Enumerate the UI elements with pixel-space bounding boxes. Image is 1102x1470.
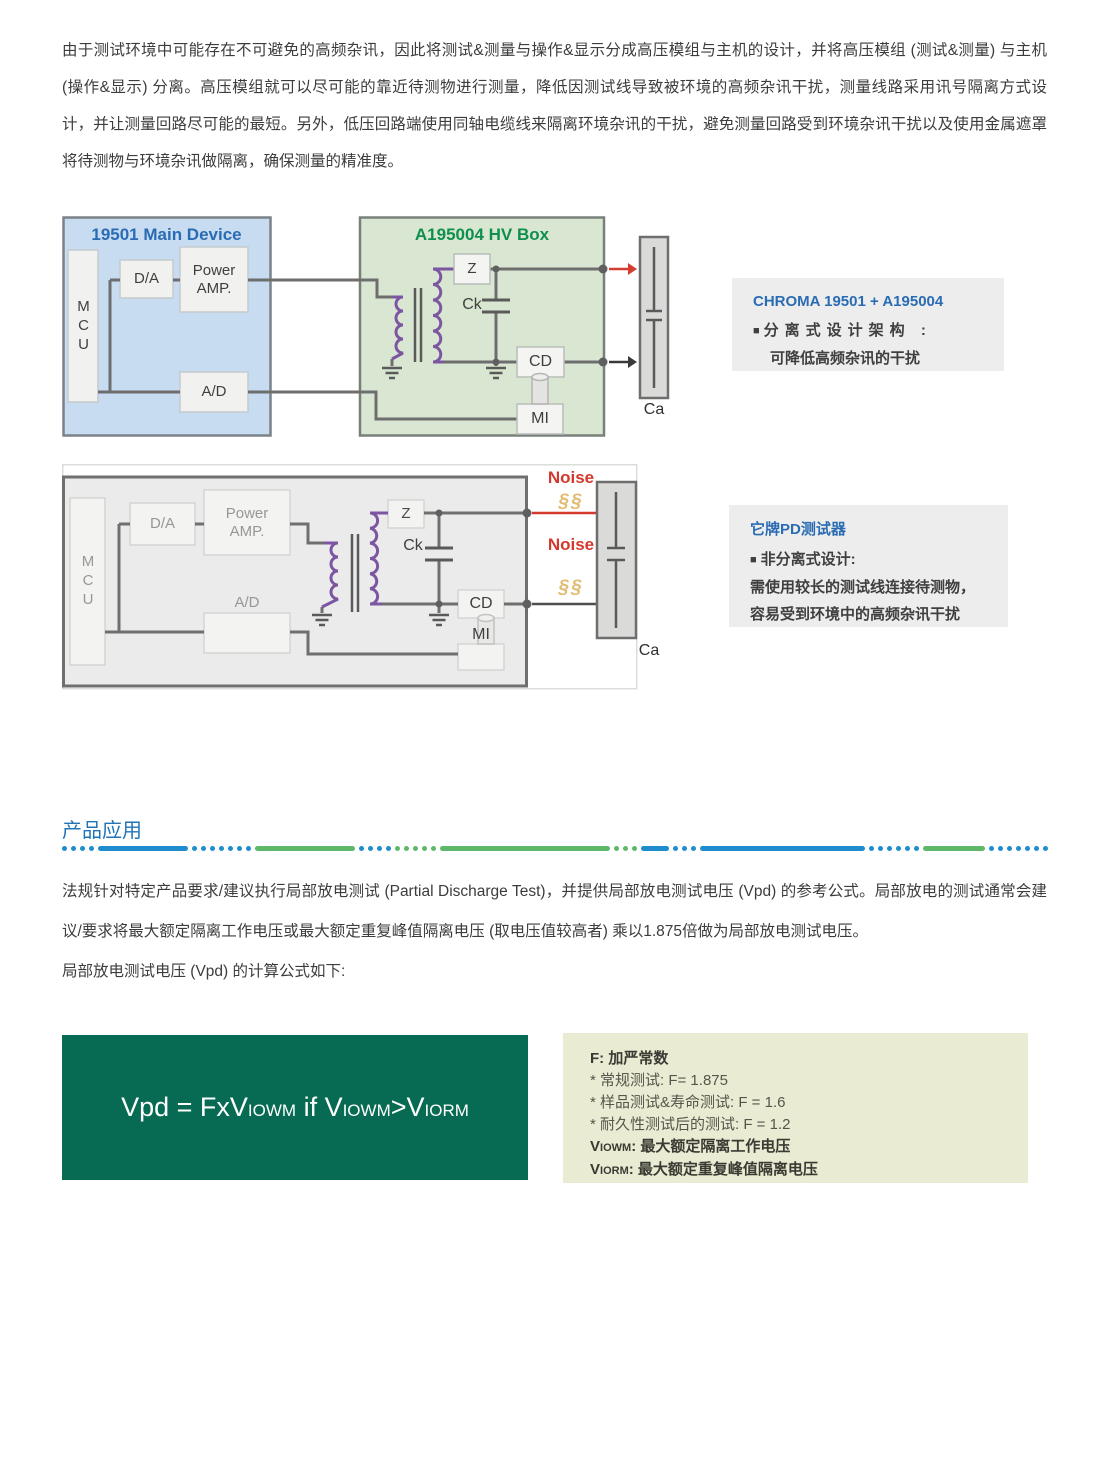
noise-spark-bottom: §§ — [530, 576, 612, 600]
noise-label-bottom: Noise — [530, 535, 612, 555]
legend-f-normal: * 常规测试: F= 1.875 — [590, 1070, 1008, 1092]
cd-block-label: CD — [517, 347, 564, 377]
square-bullet-icon: ■ — [750, 554, 757, 566]
legend-f-endurance: * 耐久性测试后的测试: F = 1.2 — [590, 1114, 1008, 1136]
formula-legend-box: F: 加严常数 * 常规测试: F= 1.875 * 样品测试&寿命测试: F … — [563, 1033, 1028, 1183]
mcu-block-label: MCU — [68, 250, 98, 402]
legend-f: F: 加严常数 — [590, 1048, 1008, 1070]
note2-title: 它牌PD测试器 — [750, 518, 992, 539]
power-amp-block-label: Power AMP. — [212, 490, 282, 555]
square-bullet-icon: ■ — [753, 325, 760, 337]
application-paragraph: 法规针对特定产品要求/建议执行局部放电测试 (Partial Discharge… — [62, 872, 1047, 952]
mi-block-label: MI — [458, 626, 504, 644]
ca-label: Ca — [632, 401, 676, 419]
legend-viorm: VIORM: 最大额定重复峰值隔离电压 — [590, 1159, 1008, 1182]
da-block-label: D/A — [130, 503, 195, 545]
note2-line2: 需使用较长的测试线连接待测物， — [750, 574, 992, 601]
hv-output-arrowhead-red — [628, 263, 637, 275]
noise-label-top: Noise — [530, 468, 612, 488]
ad-block-label: A/D — [180, 372, 248, 412]
measure-arrowhead-black — [628, 356, 637, 368]
other-brand-diagram: MCU D/A Power AMP. A/D Z Ck CD MI Noise … — [62, 464, 638, 692]
catalog-page: 由于测试环境中可能存在不可避免的高频杂讯，因此将测试&测量与操作&显示分成高压模… — [0, 0, 1102, 1470]
ad-block-label: A/D — [204, 594, 290, 612]
note1-line1: ■分离式设计架构 : — [753, 317, 986, 345]
mi-block-label: MI — [517, 404, 563, 434]
section-title: 产品应用 — [62, 814, 142, 843]
legend-viowm: VIOWM: 最大额定隔离工作电压 — [590, 1136, 1008, 1159]
note1-title: CHROMA 19501 + A195004 — [753, 293, 986, 310]
vpd-formula: Vpd = FxVIOWM if VIOWM>VIORM — [121, 1092, 469, 1123]
noise-spark-top: §§ — [530, 490, 612, 514]
ck-label: Ck — [452, 294, 492, 316]
z-block-label: Z — [388, 500, 424, 528]
legend-f-sample: * 样品测试&寿命测试: F = 1.6 — [590, 1092, 1008, 1114]
z-block-label: Z — [454, 254, 490, 284]
power-amp-block-label: Power AMP. — [180, 247, 248, 312]
formula-intro-line: 局部放电测试电压 (Vpd) 的计算公式如下: — [62, 952, 1047, 992]
da-block-label: D/A — [120, 260, 173, 298]
mcu-block-label: MCU — [70, 498, 105, 665]
chroma-design-note: CHROMA 19501 + A195004 ■分离式设计架构 : 可降低高频杂… — [732, 278, 1004, 371]
separated-design-schematic — [62, 216, 672, 451]
note2-line3: 容易受到环境中的高频杂讯干扰 — [750, 601, 992, 628]
other-brand-note: 它牌PD测试器 ■非分离式设计: 需使用较长的测试线连接待测物， 容易受到环境中… — [729, 505, 1008, 627]
intro-paragraph: 由于测试环境中可能存在不可避免的高频杂讯，因此将测试&测量与操作&显示分成高压模… — [62, 32, 1047, 180]
separated-design-diagram: 19501 Main Device A195004 HV Box MCU D/A… — [62, 216, 672, 451]
cd-block-label: CD — [458, 590, 504, 618]
section-divider — [62, 845, 1044, 852]
ca-label: Ca — [626, 642, 672, 660]
main-device-title: 19501 Main Device — [64, 224, 269, 246]
note2-line1: ■非分离式设计: — [750, 546, 992, 574]
note1-line2: 可降低高频杂讯的干扰 — [753, 345, 986, 372]
hv-box-title: A195004 HV Box — [360, 224, 604, 246]
vpd-formula-box: Vpd = FxVIOWM if VIOWM>VIORM — [62, 1035, 528, 1180]
ck-label: Ck — [392, 535, 434, 557]
